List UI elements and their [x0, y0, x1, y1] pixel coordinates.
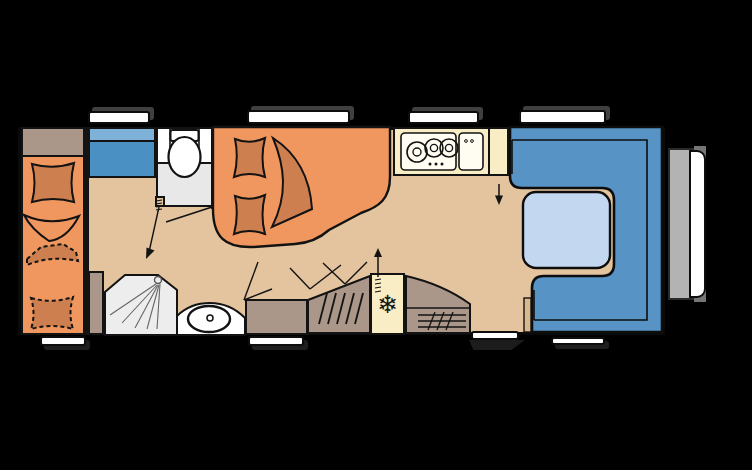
pillow [234, 138, 265, 177]
bottom-window-1 [40, 336, 86, 346]
shower [102, 271, 180, 337]
top-cabinet-left [21, 127, 85, 157]
front-window-band [689, 150, 706, 298]
pillow [32, 163, 74, 202]
wardrobe [88, 140, 156, 178]
dinette [498, 125, 668, 335]
shower-tray [105, 275, 177, 335]
roof-window-3 [408, 111, 479, 124]
bunk-folded-dashed [27, 244, 78, 265]
bathroom-swing-arrow [143, 200, 165, 262]
pillow [234, 195, 265, 234]
french-bed [211, 125, 393, 251]
fridge-swing-arrow [371, 247, 387, 295]
roof-window-4 [519, 110, 606, 124]
toilet [156, 127, 213, 183]
roof-window-2 [247, 110, 350, 124]
cabinet-d [406, 276, 470, 333]
roof-window-1 [88, 111, 150, 124]
entry-door [471, 331, 519, 340]
entry-step [469, 340, 525, 350]
single-bed-bedding [21, 155, 85, 335]
caravan-floorplan: ❄ [0, 0, 752, 470]
faucet-icon [207, 315, 213, 321]
kitchen-appliances [393, 127, 509, 176]
washbasin [176, 299, 246, 336]
blanket [24, 215, 79, 241]
bunk-pillow-dashed [31, 297, 73, 329]
kitchen-sink [459, 133, 483, 170]
bathroom-door-line [163, 203, 215, 225]
bottom-window-3 [551, 337, 605, 345]
seat-end-panel [524, 298, 531, 332]
bottom-window-2 [248, 336, 304, 346]
locker-swing-lines [240, 255, 375, 305]
dinette-table [523, 192, 610, 268]
toilet-bowl [169, 137, 201, 177]
hanging-wardrobe-cabinet [404, 273, 472, 335]
